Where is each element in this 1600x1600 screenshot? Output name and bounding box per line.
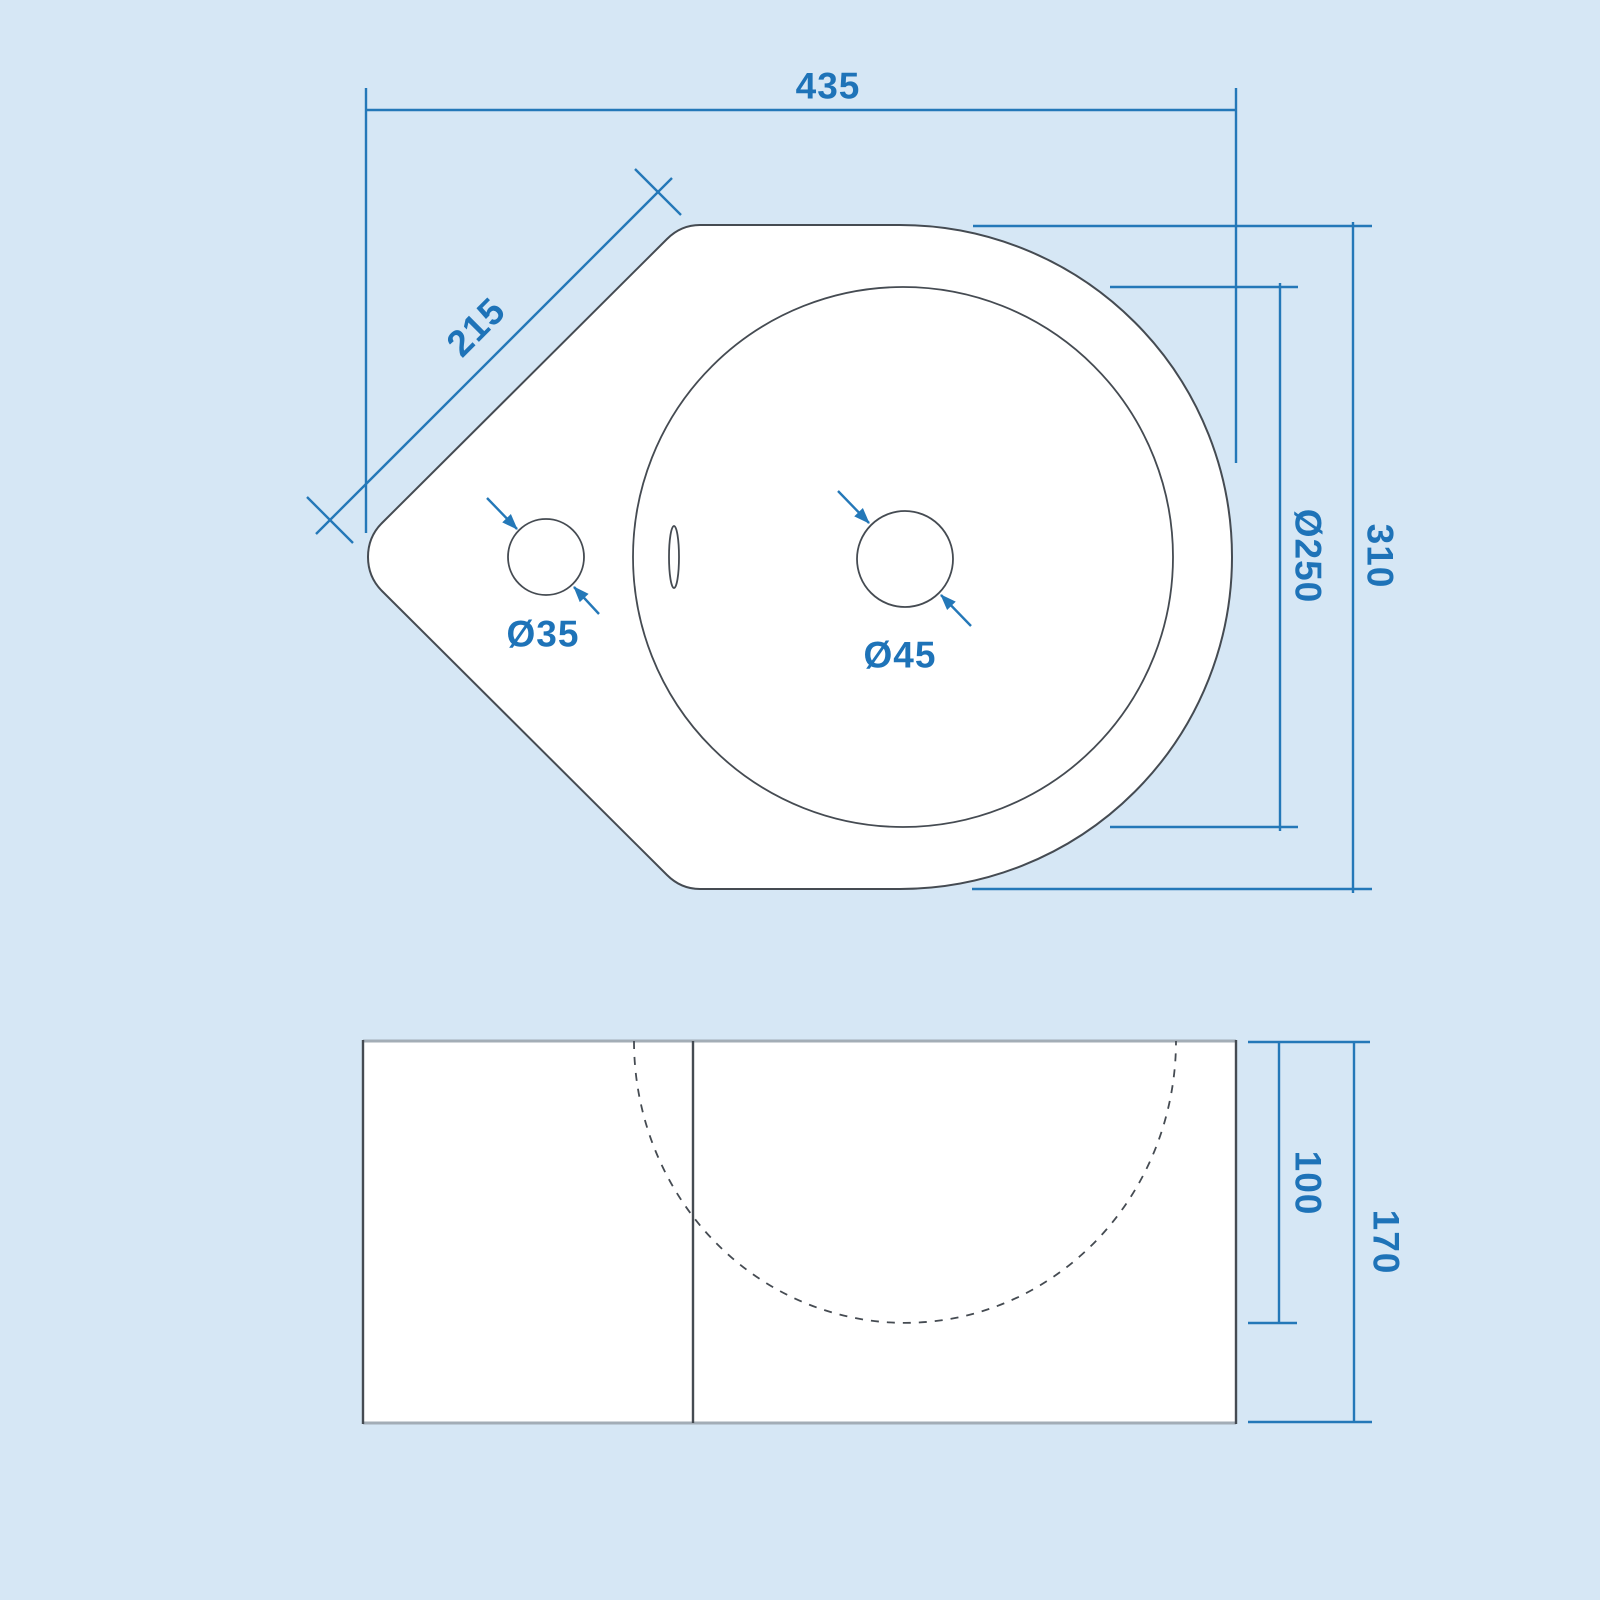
- technical-drawing: 435 215 Ø250 310 Ø35: [0, 0, 1600, 1600]
- dim-bowl-depth: 100: [1248, 1042, 1370, 1323]
- dimension-label: 215: [439, 290, 514, 365]
- top-view: 435 215 Ø250 310 Ø35: [307, 66, 1401, 894]
- dimension-label: Ø45: [864, 635, 937, 676]
- dimension-label: 435: [796, 66, 861, 107]
- dimension-label: Ø250: [1288, 509, 1329, 604]
- dimension-label: 170: [1366, 1210, 1407, 1275]
- front-view: 100 170: [363, 1040, 1407, 1424]
- dimension-label: 310: [1360, 524, 1401, 589]
- tap-hole: [508, 519, 584, 595]
- waste-hole: [857, 511, 953, 607]
- dimension-label: 100: [1288, 1151, 1329, 1216]
- dimension-label: Ø35: [507, 614, 580, 655]
- dim-overall-height: 170: [1248, 1042, 1407, 1422]
- overflow-slot: [669, 526, 679, 588]
